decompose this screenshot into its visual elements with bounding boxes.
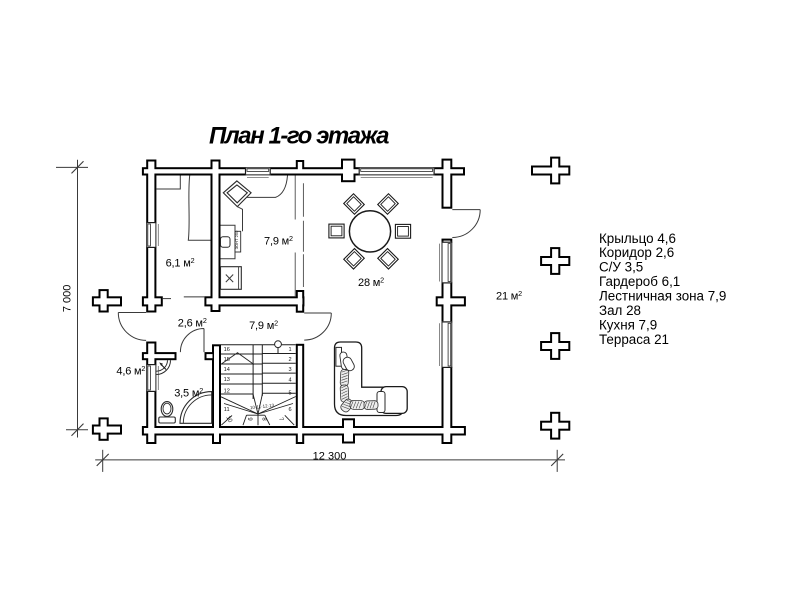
svg-text:3,5 м2: 3,5 м2	[174, 386, 203, 399]
svg-text:12: 12	[224, 389, 230, 395]
svg-text:Терраса 21: Терраса 21	[599, 332, 669, 347]
svg-text:14: 14	[224, 367, 230, 373]
svg-text:6,1 м2: 6,1 м2	[166, 256, 195, 269]
svg-text:Кухня 7,9: Кухня 7,9	[599, 318, 657, 333]
svg-text:12 300: 12 300	[313, 450, 347, 462]
svg-text:15: 15	[224, 357, 230, 363]
svg-text:4: 4	[288, 377, 291, 383]
svg-text:ЗОНТ 250: ЗОНТ 250	[234, 230, 239, 249]
svg-text:Зал 28: Зал 28	[599, 303, 641, 318]
svg-text:План 1-го этажа: План 1-го этажа	[209, 123, 389, 150]
svg-text:7 000: 7 000	[62, 285, 74, 313]
svg-text:6: 6	[288, 407, 291, 413]
svg-text:2,6 м2: 2,6 м2	[178, 316, 207, 329]
svg-text:С/У 3,5: С/У 3,5	[599, 260, 643, 275]
svg-text:7,9 м2: 7,9 м2	[249, 318, 278, 331]
svg-text:1: 1	[288, 347, 291, 353]
svg-text:Лестничная зона 7,9: Лестничная зона 7,9	[599, 289, 726, 304]
svg-text:Крыльцо 4,6: Крыльцо 4,6	[599, 231, 676, 246]
svg-text:11: 11	[224, 407, 230, 413]
svg-text:Гардероб 6,1: Гардероб 6,1	[599, 274, 680, 289]
svg-text:Коридор 2,6: Коридор 2,6	[599, 245, 674, 260]
svg-text:13: 13	[224, 377, 230, 383]
svg-text:2: 2	[288, 357, 291, 363]
svg-text:16: 16	[224, 347, 230, 353]
svg-text:5: 5	[288, 391, 291, 397]
svg-text:4,6 м2: 4,6 м2	[116, 364, 145, 377]
svg-text:3: 3	[288, 367, 291, 373]
svg-text:7,9 м2: 7,9 м2	[264, 234, 293, 247]
